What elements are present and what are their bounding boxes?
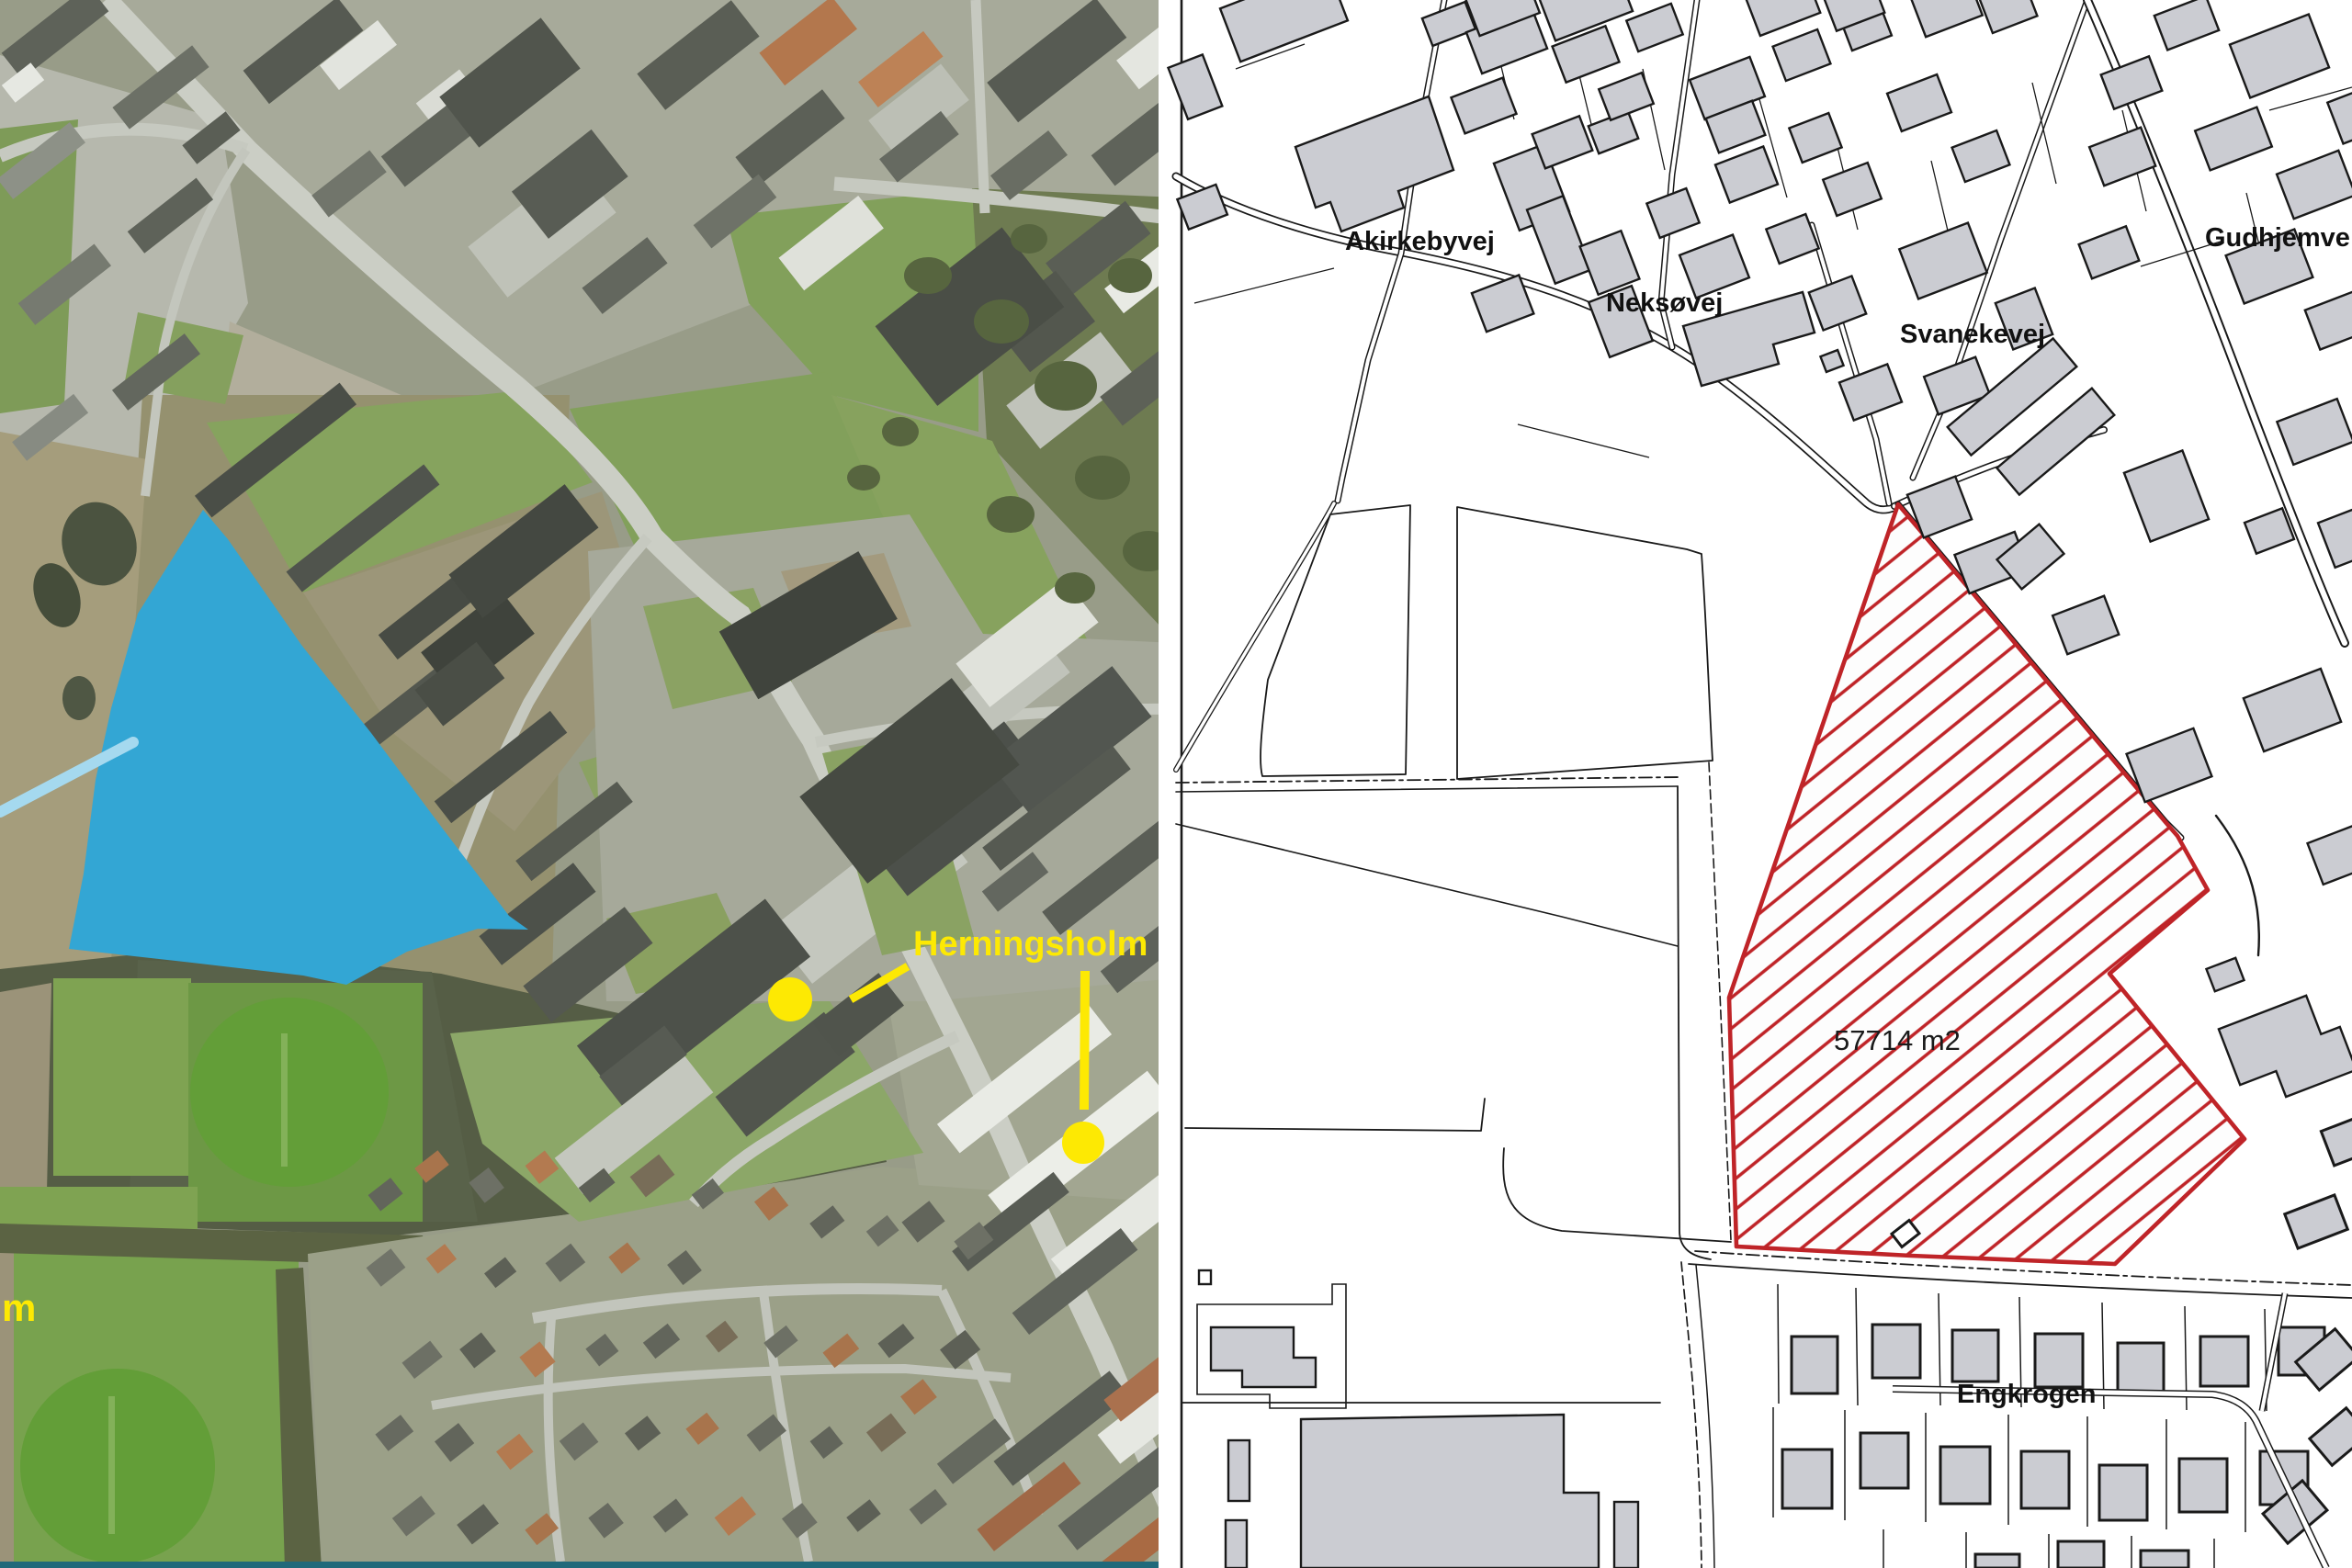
svg-text:Akirkebyvej: Akirkebyvej xyxy=(1345,227,1495,256)
svg-text:m: m xyxy=(2,1286,36,1329)
svg-text:Engkrogen: Engkrogen xyxy=(1957,1380,2096,1409)
svg-text:Gudhjemve: Gudhjemve xyxy=(2205,223,2350,253)
svg-text:57714 m2: 57714 m2 xyxy=(1834,1024,1961,1056)
svg-text:Herningsholm: Herningsholm xyxy=(913,925,1148,964)
svg-text:Svanekevej: Svanekevej xyxy=(1900,320,2045,349)
svg-text:Neksøvej: Neksøvej xyxy=(1606,288,1723,318)
